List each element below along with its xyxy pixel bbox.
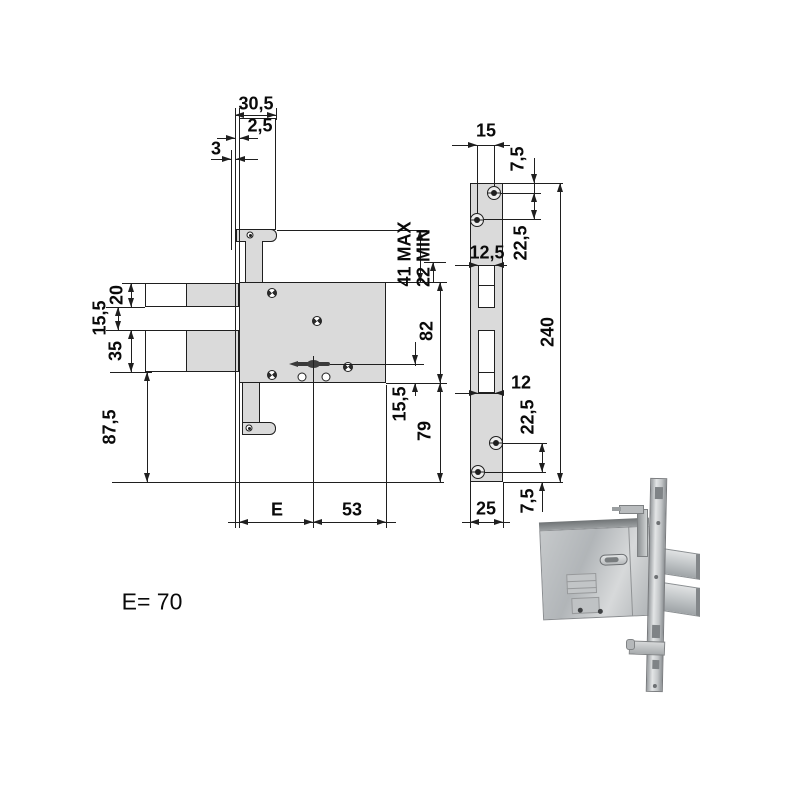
photo-lock-body — [539, 518, 653, 621]
photo-key-slot — [605, 557, 619, 563]
photo-faceplate-screw — [656, 521, 660, 525]
photo-body-front-face — [539, 526, 653, 621]
product-dimension-diagram: 30,5 2,5 3 41 MAX 22 MIN 20 — [0, 0, 800, 800]
photo-stamp-panel — [566, 573, 597, 594]
photo-faceplate-slot — [652, 660, 659, 669]
photo-bottom-tab-knob — [626, 639, 635, 650]
photo-deadbolt-top — [663, 548, 700, 580]
photo-stamp-panel — [571, 597, 600, 614]
photo-faceplate-slot — [655, 487, 663, 499]
photo-top-bracket-flag — [619, 505, 644, 514]
photo-top-bracket-pin — [612, 507, 621, 511]
photo-faceplate-screw — [654, 575, 658, 579]
photo-rivet — [598, 609, 603, 614]
photo-deadbolt-bottom — [663, 582, 700, 617]
photo-faceplate-screw — [653, 684, 657, 688]
photo-body-seam — [628, 528, 633, 616]
photo-faceplate — [646, 478, 667, 692]
product-photo — [0, 0, 800, 800]
photo-faceplate-slot — [652, 625, 660, 638]
photo-top-bracket — [637, 509, 648, 557]
